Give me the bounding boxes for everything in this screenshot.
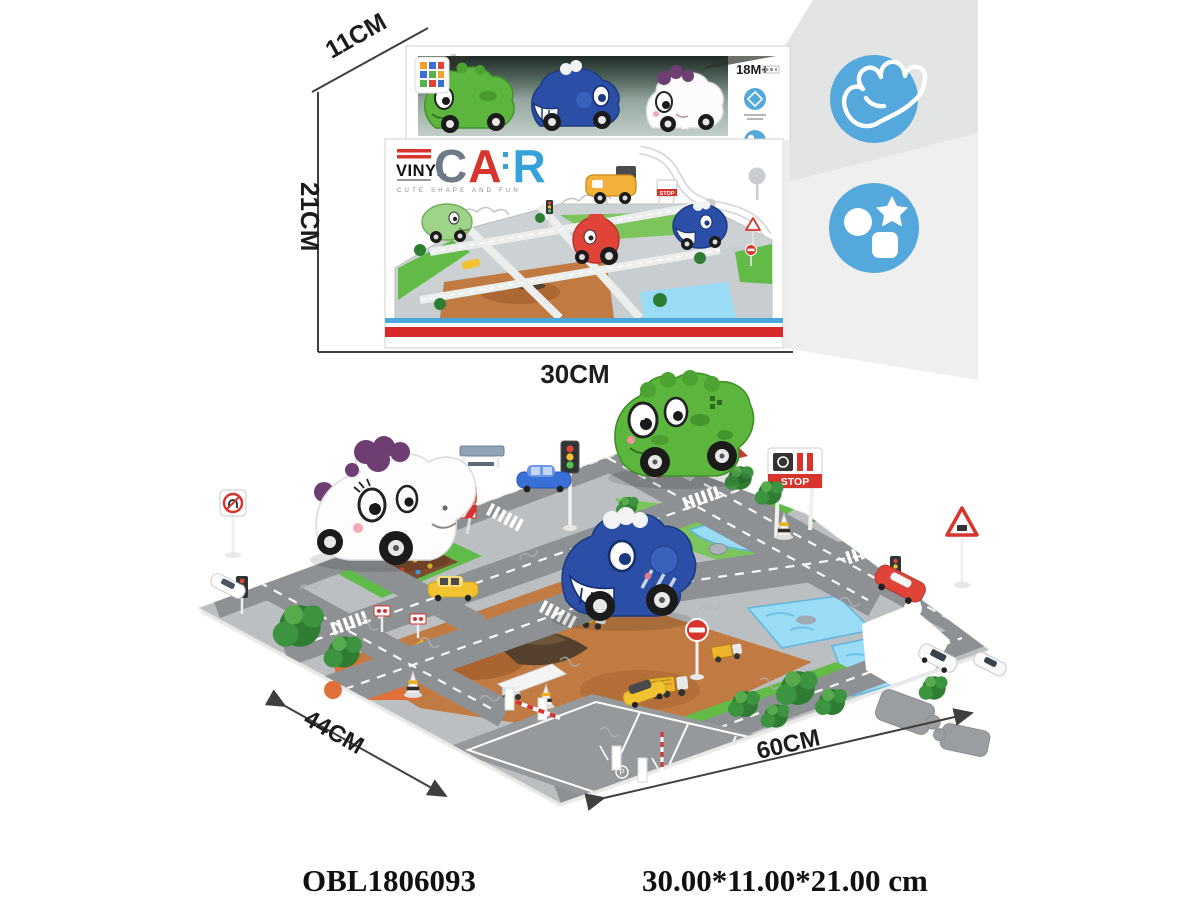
title-car: CAR <box>434 140 546 192</box>
svg-text:STOP: STOP <box>660 191 675 197</box>
box-width-label: 30CM <box>540 359 609 389</box>
svg-text:STOP: STOP <box>781 476 809 488</box>
box-stripe-red <box>385 327 783 337</box>
svg-text:™: ™ <box>450 53 456 60</box>
scene: 11CM 21CM 30CM <box>0 0 1200 900</box>
zoo-hippo <box>709 544 727 555</box>
feature-badge-shapes <box>829 183 919 273</box>
no-u-turn-sign <box>220 490 246 558</box>
warning-triangle-sign <box>947 508 977 589</box>
product-photo: 11CM 21CM 30CM <box>0 0 1200 900</box>
tree <box>919 676 948 699</box>
product-box: ™ 18M+ VINYL CUTE SHAPE AND FUN <box>385 46 790 348</box>
orange-knob <box>324 681 342 699</box>
mat-depth-label: 44CM <box>299 705 368 760</box>
age-grade-label: 18M+ <box>736 62 769 77</box>
product-dimensions: 30.00*11.00*21.00 cm <box>642 863 928 898</box>
loose-puzzle-piece <box>931 721 991 758</box>
white-car <box>209 572 247 601</box>
box-stripe-blue <box>385 318 783 323</box>
box-height-label: 21CM <box>295 182 325 251</box>
white-car <box>972 650 1009 678</box>
product-code: OBL1806093 <box>302 863 476 898</box>
box-depth-label: 11CM <box>321 8 392 65</box>
play-mat: P P <box>199 370 1008 807</box>
dino-toy-car <box>608 370 754 489</box>
